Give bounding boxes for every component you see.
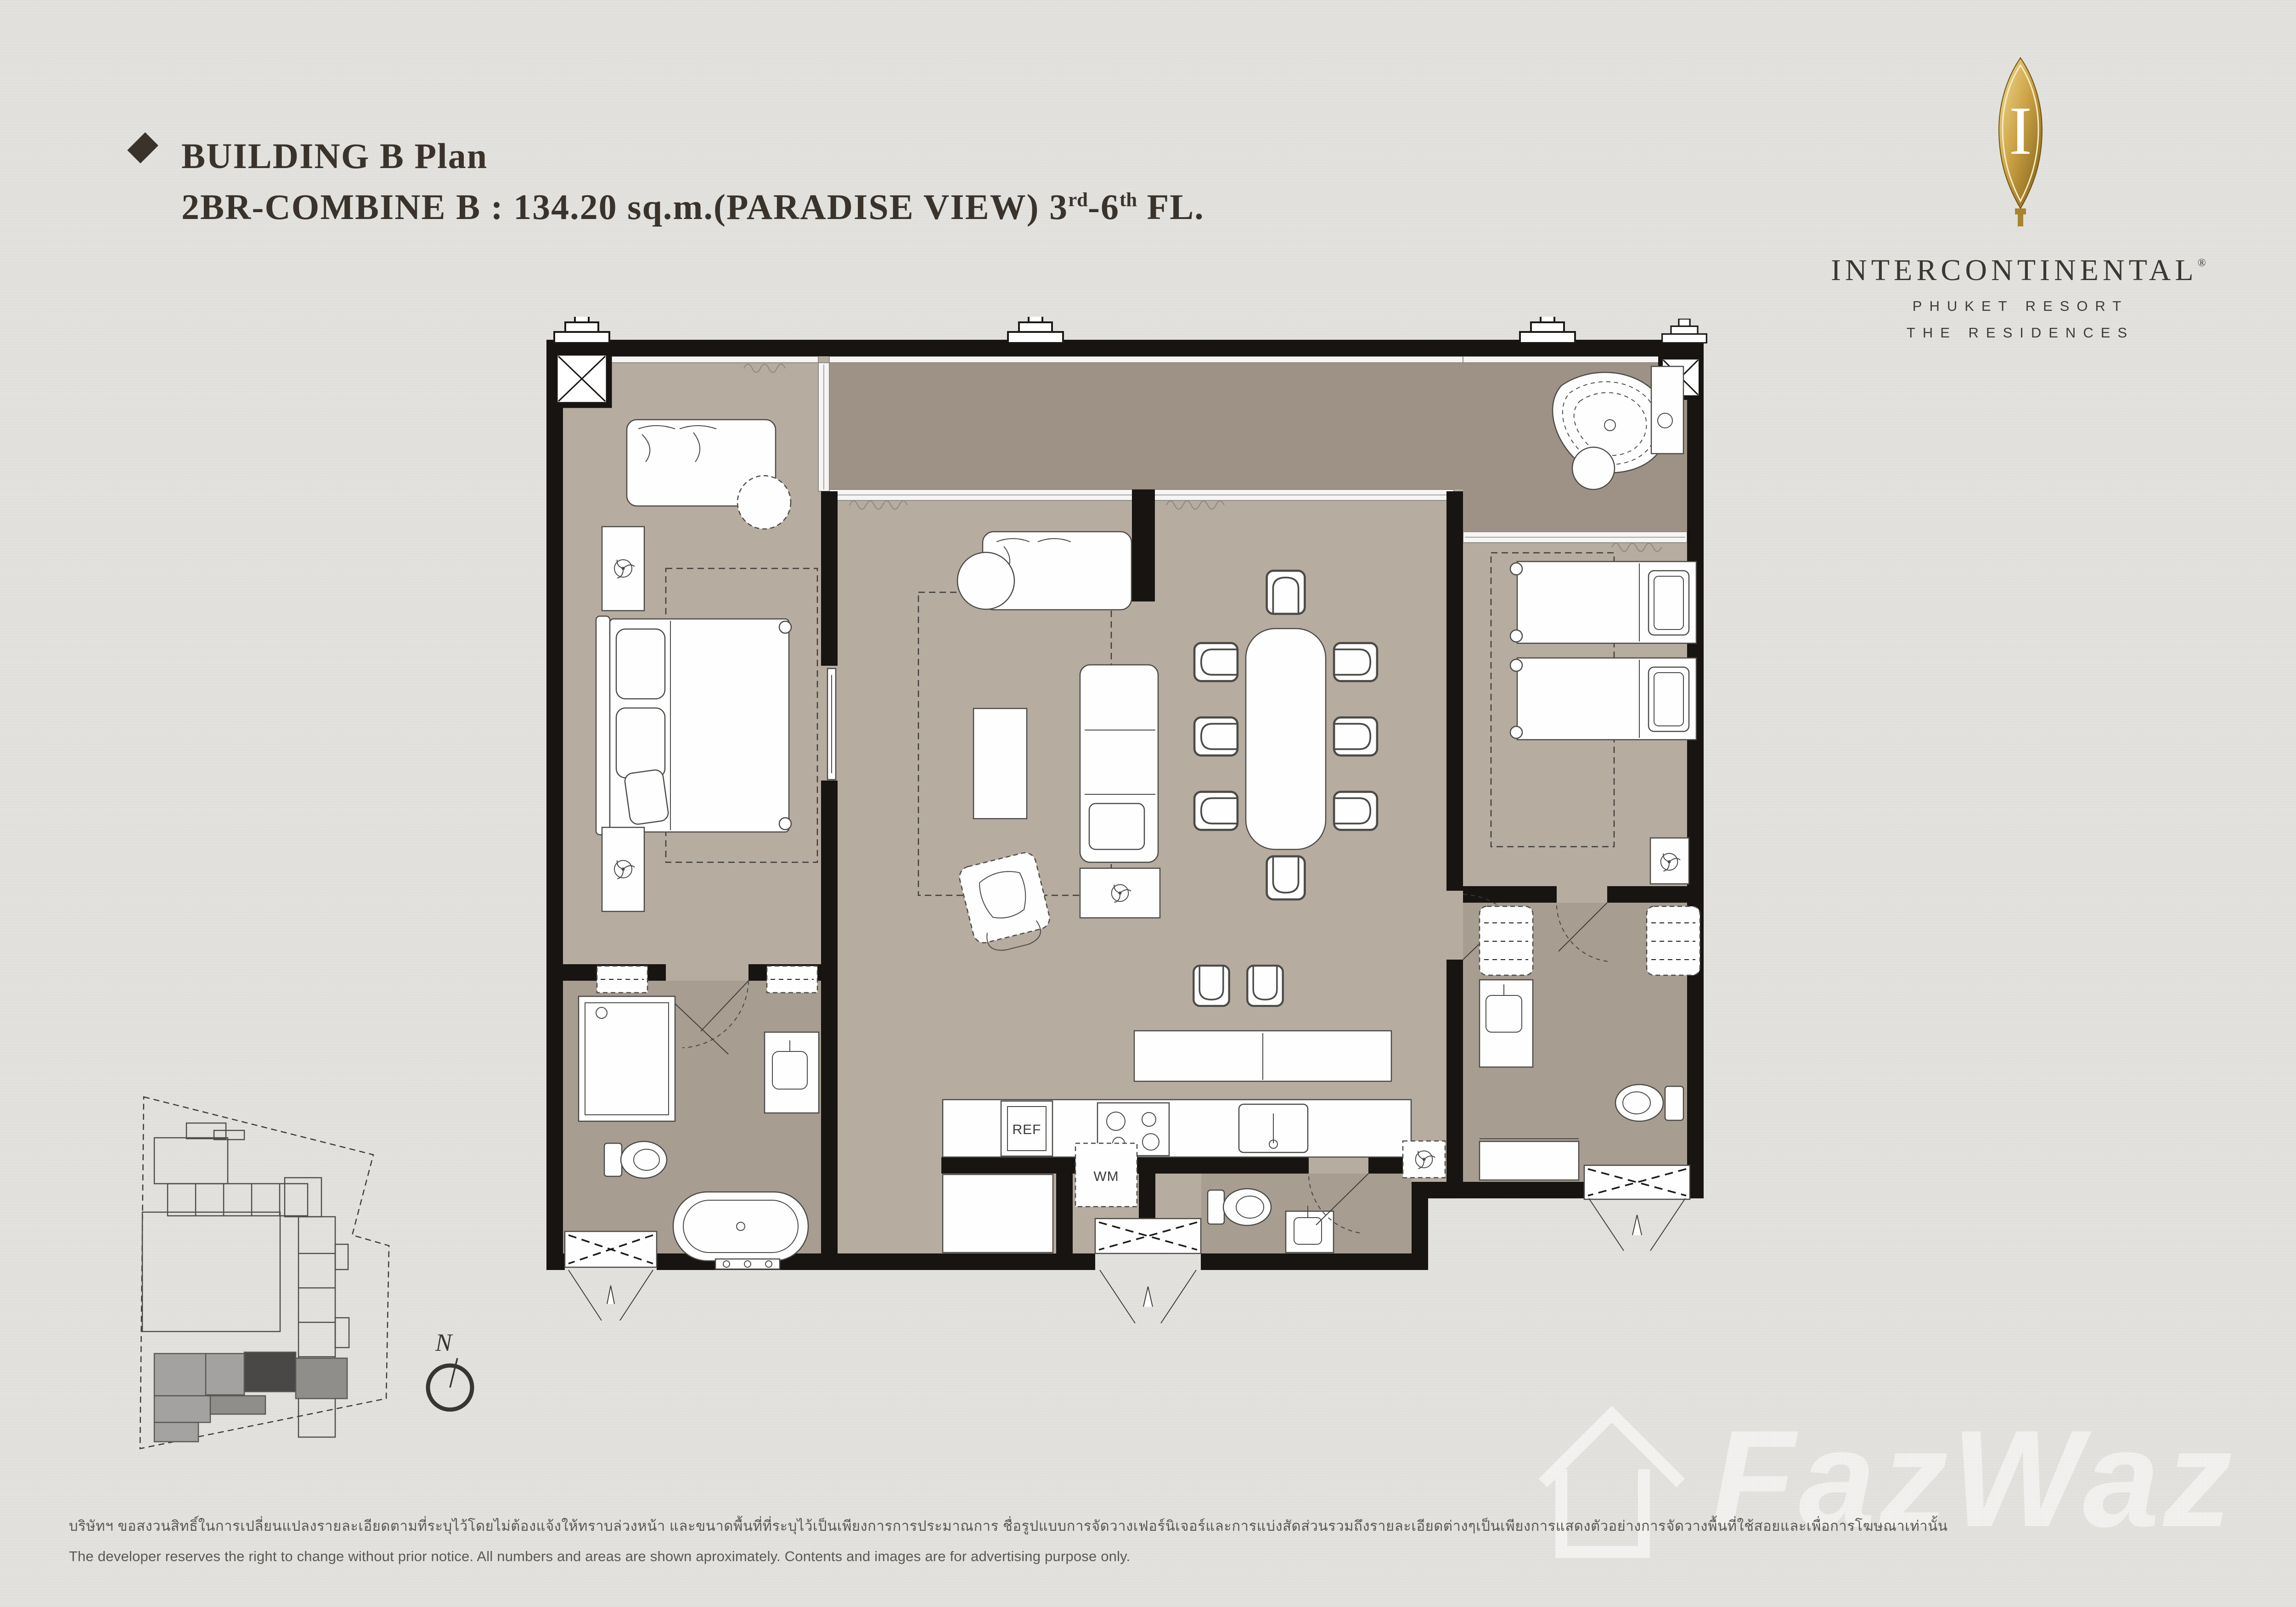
dining-chair <box>1267 856 1305 899</box>
dining-chair <box>1334 643 1377 681</box>
floor-end: 6 <box>1101 187 1120 227</box>
toilet <box>1615 1084 1683 1121</box>
floor-separator: - <box>1088 187 1101 227</box>
tub-stool <box>1572 447 1615 489</box>
dining-chair <box>1194 792 1238 830</box>
intercontinental-emblem-icon: I <box>1993 55 2048 239</box>
pillow <box>1649 667 1689 731</box>
building-plan-title: BUILDING B Plan <box>181 136 488 176</box>
main-entrance-door <box>1095 1219 1201 1323</box>
dining-chair <box>1334 792 1377 830</box>
diamond-bullet-icon <box>127 132 158 163</box>
bathtub <box>673 1192 808 1269</box>
bed-headboard <box>596 616 610 835</box>
title-line-2: 2BR-COMBINE B : 134.20 sq.m.(PARADISE VI… <box>181 182 1204 233</box>
shower-bench <box>1480 1141 1579 1180</box>
disclaimer-thai: บริษัทฯ ขอสงวนสิทธิ์ในการเปลี่ยนแปลงรายล… <box>69 1514 2273 1537</box>
pillow <box>616 708 665 778</box>
coffee-table <box>974 708 1027 819</box>
bath2-terrace-door <box>1584 1165 1690 1251</box>
unit-type-area-text: 2BR-COMBINE B : 134.20 sq.m.(PARADISE VI… <box>181 187 1049 227</box>
title-line-1: BUILDING B Plan <box>131 131 1204 182</box>
floor-start: 3 <box>1049 187 1068 227</box>
header-title-block: BUILDING B Plan 2BR-COMBINE B : 134.20 s… <box>131 131 1204 233</box>
washing-machine-label: WM <box>1093 1169 1119 1184</box>
dining-chair <box>1194 718 1238 756</box>
terrace-deck-box <box>1651 366 1683 454</box>
accent-pillow <box>624 769 670 826</box>
sofa-ottoman <box>1089 803 1144 849</box>
logo-subtitle-resort: PHUKET RESORT <box>1791 298 2250 315</box>
pillow <box>1649 571 1689 635</box>
compass-needle <box>450 1358 457 1388</box>
intercontinental-logo: I INTERCONTINENTAL® PHUKET RESORT THE RE… <box>1791 55 2250 341</box>
north-compass: N <box>404 1322 505 1433</box>
refrigerator-label: REF <box>1013 1122 1041 1137</box>
shower <box>579 996 675 1121</box>
kitchen-cabinet <box>943 1174 1053 1253</box>
logo-monogram: I <box>2009 93 2032 169</box>
page-root: { "header": { "bullet_icon": "diamond-bu… <box>0 0 2296 1607</box>
north-label: N <box>435 1329 453 1356</box>
building-b-highlight-cluster <box>154 1352 347 1442</box>
toilet <box>1208 1189 1271 1225</box>
round-lounge-table <box>957 552 1014 609</box>
vanity <box>1480 980 1533 1067</box>
floor-suffix: FL. <box>1137 187 1204 227</box>
bar-stool <box>1247 966 1283 1006</box>
logo-brand-line: INTERCONTINENTAL® <box>1791 253 2250 288</box>
dining-chair <box>1194 643 1238 681</box>
building-b-marker <box>244 1352 296 1392</box>
dining-table <box>1246 629 1326 849</box>
bar-stool <box>1193 966 1229 1006</box>
disclaimer: บริษัทฯ ขอสงวนสิทธิ์ในการเปลี่ยนแปลงรายล… <box>69 1514 2273 1565</box>
dining-chair <box>1267 571 1305 614</box>
logo-brand-text: INTERCONTINENTAL <box>1831 253 2198 287</box>
floor-plan: REF WM <box>528 317 1722 1354</box>
round-side-table <box>737 476 791 529</box>
terrace-main-floor <box>829 356 1463 489</box>
pillow <box>616 629 665 699</box>
toilet <box>604 1141 667 1178</box>
dining-chair <box>1334 718 1377 756</box>
master-terrace-door <box>565 1231 657 1320</box>
registered-mark: ® <box>2198 257 2210 269</box>
floor-end-ordinal: th <box>1120 189 1137 211</box>
floor-start-ordinal: rd <box>1068 189 1088 211</box>
disclaimer-english: The developer reserves the right to chan… <box>69 1548 2273 1565</box>
logo-subtitle-residences: THE RESIDENCES <box>1791 325 2250 341</box>
